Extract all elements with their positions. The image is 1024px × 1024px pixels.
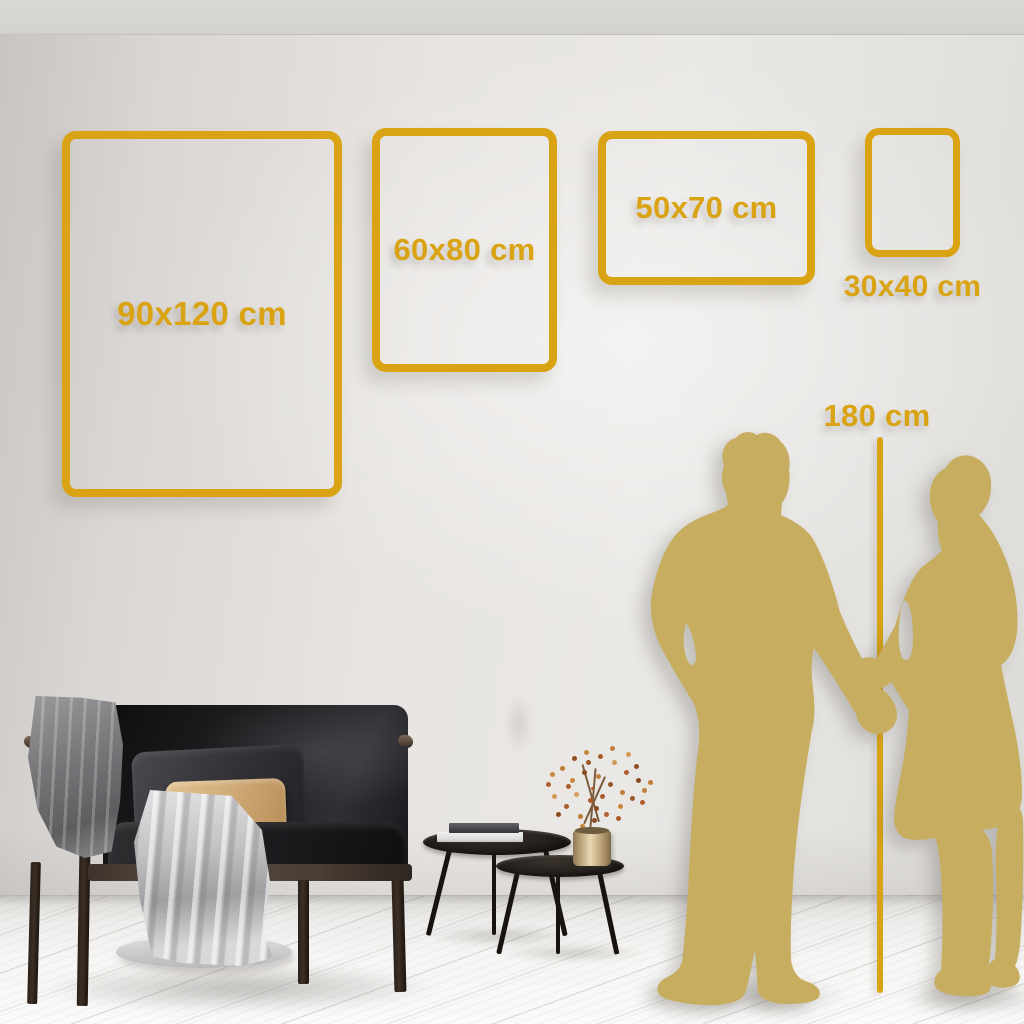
size-frame-30x40 [865,128,960,257]
size-label-30x40: 30x40 cm [820,268,1005,306]
poster-size-guide-scene: 90x120 cm 60x80 cm 50x70 cm 30x40 cm [0,0,1024,1024]
wall-smudge [505,695,533,753]
sofa-floor-shadow [38,964,442,1012]
size-frame-50x70: 50x70 cm [598,131,815,285]
height-reference-line [877,437,883,993]
dried-branch-berries [591,787,594,790]
sofa-leg [298,880,309,984]
sofa-arm-bar-knob [398,735,412,746]
size-label-90x120: 90x120 cm [117,295,287,333]
height-label: 180 cm [787,398,967,434]
gold-vase [573,830,611,866]
size-label-50x70: 50x70 cm [635,190,777,226]
man-floor-shadow [636,976,852,1016]
size-label-60x80: 60x80 cm [393,232,535,268]
book-stack [437,832,523,842]
table-leg [556,876,560,954]
size-frame-60x80: 60x80 cm [372,128,557,372]
ceiling-seam [0,0,1024,35]
book-stack [449,823,519,833]
table-floor-shadow [498,944,648,962]
size-frame-90x120: 90x120 cm [62,131,342,497]
